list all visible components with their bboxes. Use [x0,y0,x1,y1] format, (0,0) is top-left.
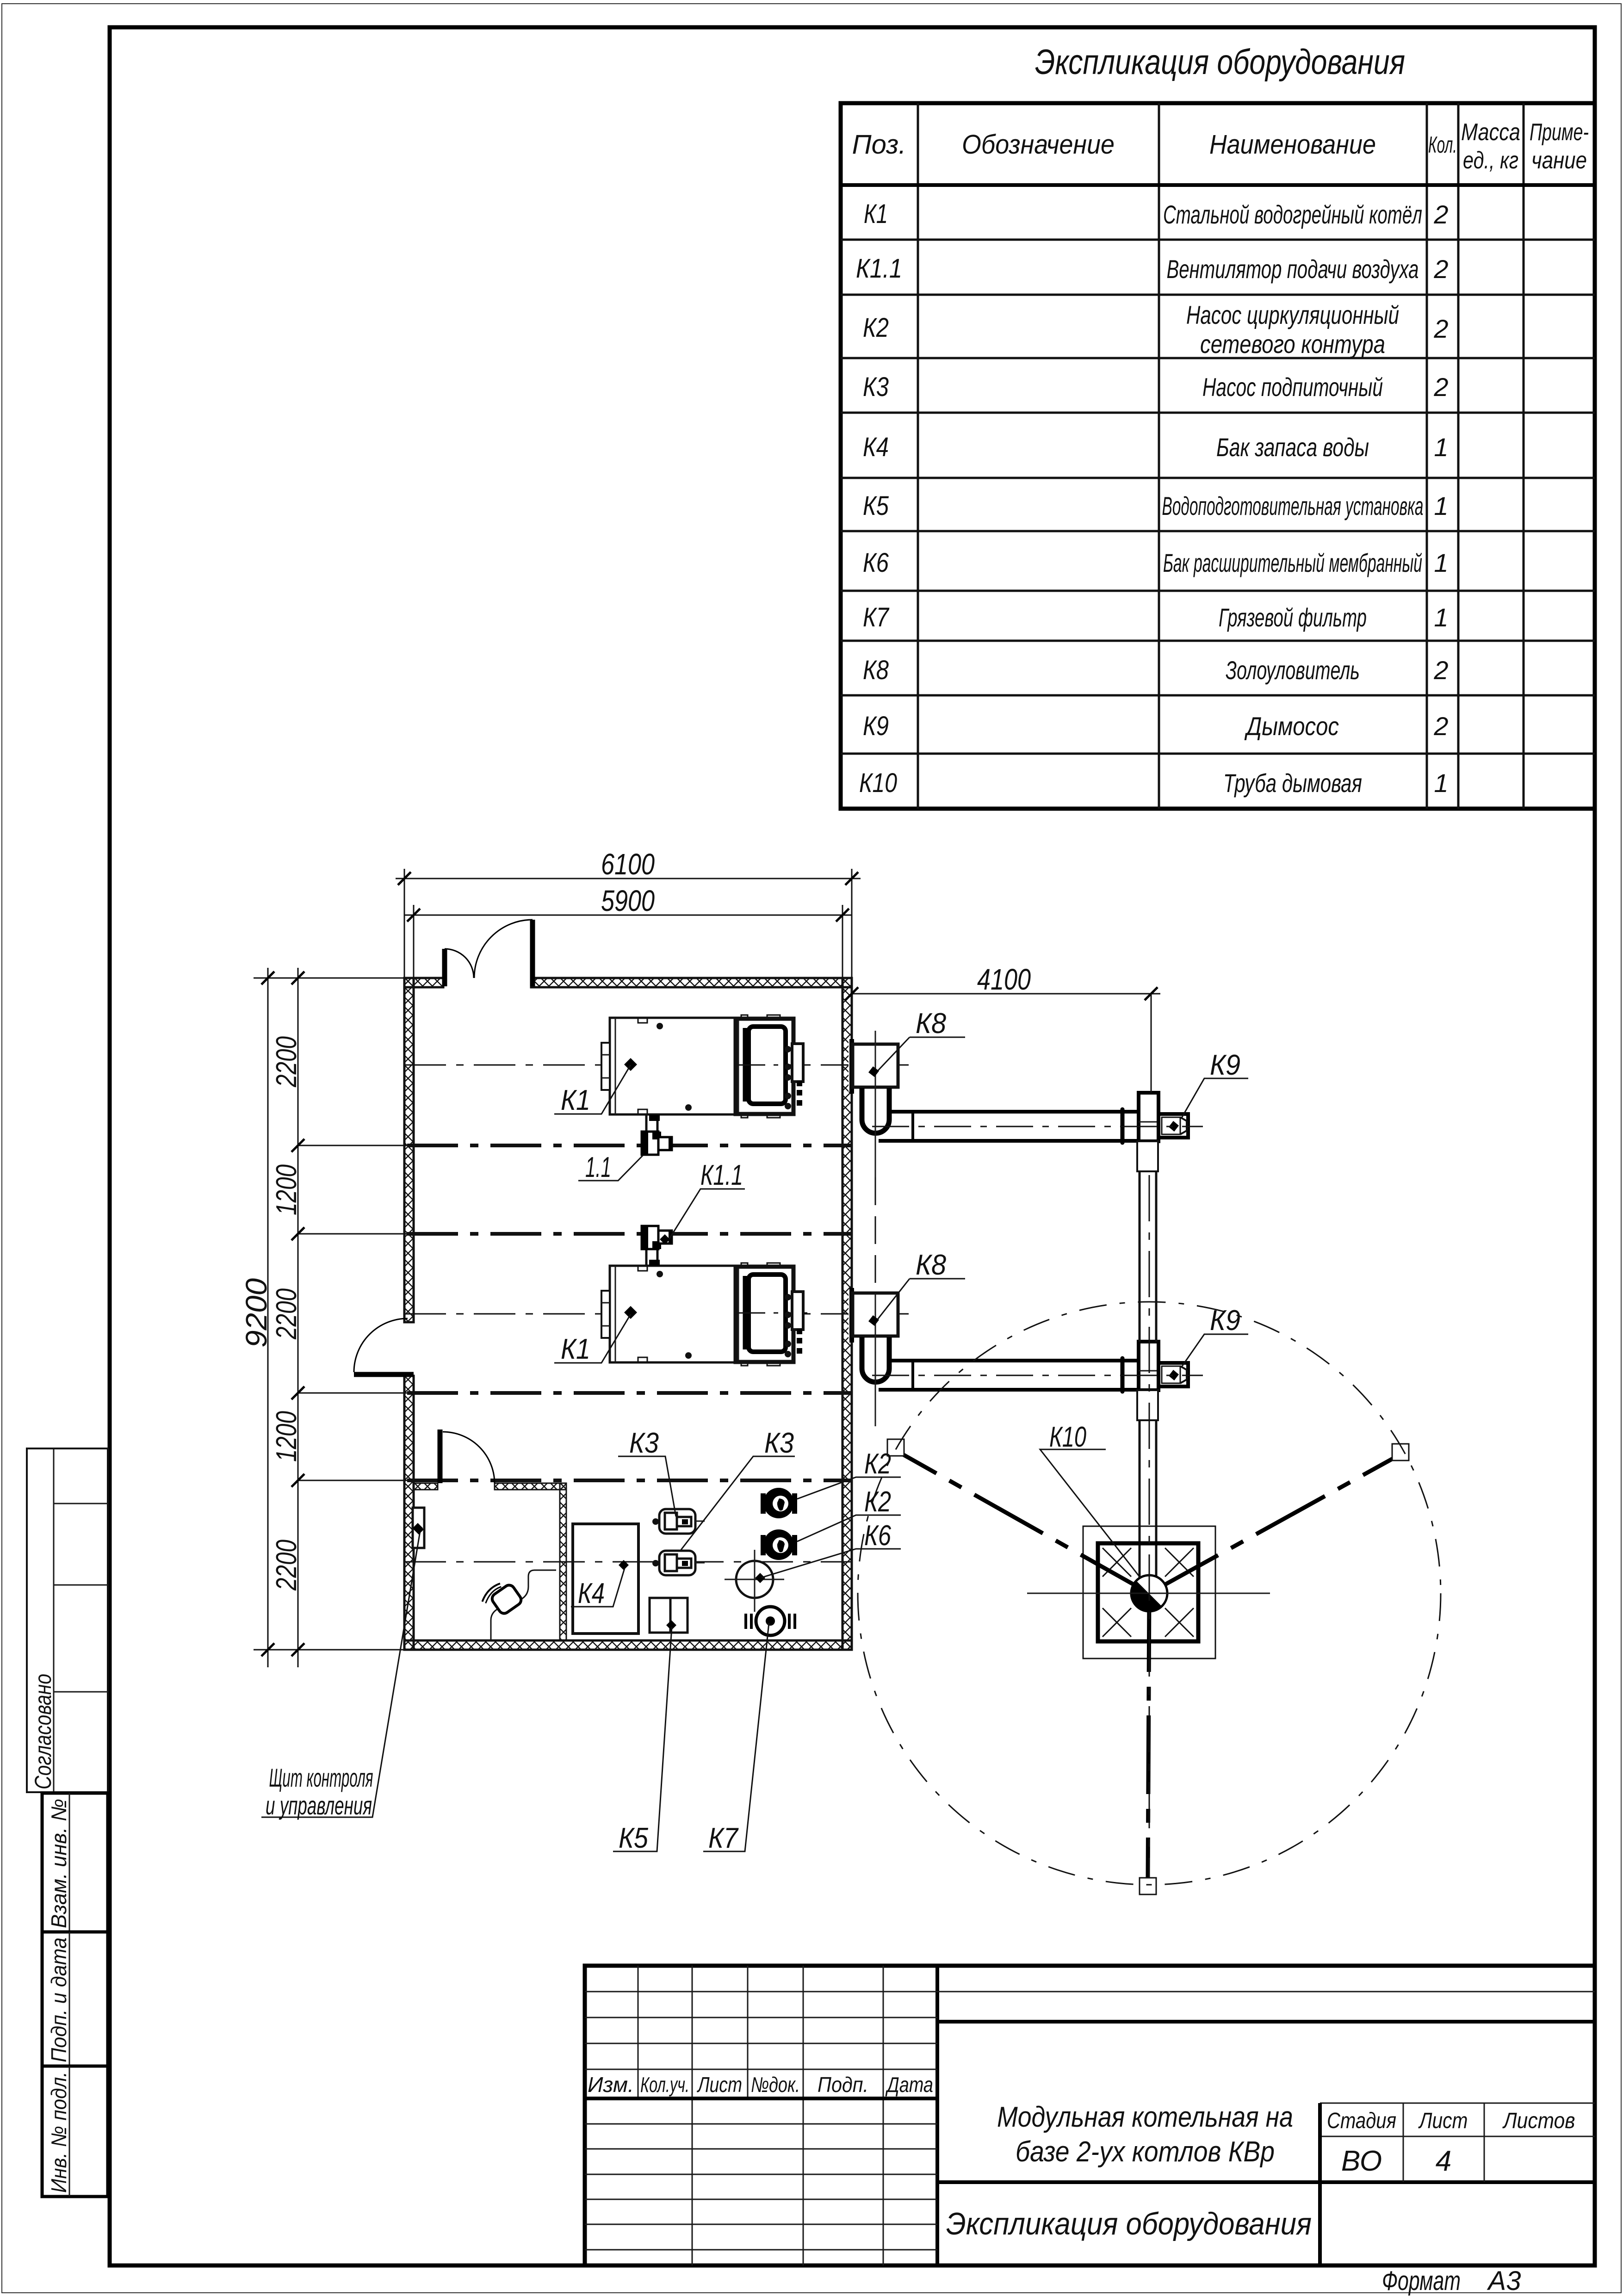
svg-text:2200: 2200 [271,1036,303,1088]
svg-text:2: 2 [1433,372,1448,402]
svg-text:К9: К9 [863,711,889,741]
svg-text:Бак расширительный мембранный: Бак расширительный мембранный [1163,548,1422,577]
svg-text:Масса: Масса [1461,119,1520,146]
svg-text:2: 2 [1433,200,1448,229]
svg-text:К8: К8 [916,1008,946,1040]
svg-text:2: 2 [1433,656,1448,685]
svg-text:сетевого контура: сетевого контура [1200,329,1385,359]
svg-text:Модульная котельная на: Модульная котельная на [997,2101,1293,2133]
svg-text:9200: 9200 [240,1278,273,1348]
svg-text:К8: К8 [916,1249,946,1281]
svg-text:ВО: ВО [1341,2145,1382,2177]
svg-text:К6: К6 [864,1520,891,1552]
svg-text:Стальной водогрейный котёл: Стальной водогрейный котёл [1163,200,1422,229]
svg-text:1: 1 [1434,768,1448,798]
svg-text:К1.1: К1.1 [856,254,902,284]
svg-text:1200: 1200 [271,1411,303,1462]
svg-text:К5: К5 [619,1822,648,1854]
svg-text:базе 2-ух котлов КВр: базе 2-ух котлов КВр [1016,2136,1275,2168]
svg-text:2200: 2200 [271,1288,303,1340]
svg-text:1: 1 [1434,433,1448,462]
svg-text:2200: 2200 [271,1540,303,1591]
svg-text:К10: К10 [1049,1421,1086,1453]
svg-text:К1: К1 [561,1084,590,1116]
svg-text:К10: К10 [859,768,897,798]
svg-text:К6: К6 [863,548,889,578]
svg-text:К2: К2 [864,1448,891,1480]
svg-text:Труба дымовая: Труба дымовая [1223,768,1362,798]
svg-text:5900: 5900 [601,884,655,917]
svg-text:2: 2 [1433,314,1448,343]
svg-text:Формат: Формат [1382,2266,1461,2296]
svg-text:Обозначение: Обозначение [962,130,1115,160]
svg-text:К9: К9 [1210,1049,1240,1081]
svg-text:К4: К4 [863,432,889,462]
svg-text:Дымосос: Дымосос [1244,712,1339,741]
svg-text:А3: А3 [1487,2266,1521,2296]
svg-text:1.1: 1.1 [585,1151,611,1183]
svg-text:К3: К3 [629,1427,659,1459]
svg-text:К8: К8 [863,655,889,685]
svg-text:1200: 1200 [271,1164,303,1215]
svg-text:К3: К3 [764,1427,794,1459]
svg-text:К7: К7 [863,602,890,632]
svg-text:4100: 4100 [977,963,1031,996]
svg-text:Насос подпиточный: Насос подпиточный [1202,372,1383,402]
svg-text:Листов: Листов [1502,2109,1575,2133]
svg-text:Экспликация оборудования: Экспликация оборудования [1035,43,1405,82]
svg-text:К1: К1 [864,199,888,229]
svg-text:2: 2 [1433,254,1448,284]
svg-text:и управления: и управления [266,1791,372,1820]
svg-text:Инв. № подл.: Инв. № подл. [47,2072,71,2193]
svg-text:Лист: Лист [1418,2109,1468,2133]
svg-text:К5: К5 [863,491,889,521]
svg-text:Изм.: Изм. [588,2073,634,2097]
svg-text:Экспликация оборудования: Экспликация оборудования [946,2206,1312,2241]
svg-text:1: 1 [1434,548,1448,577]
svg-text:К9: К9 [1210,1305,1240,1337]
svg-text:Щит контроля: Щит контроля [269,1763,373,1792]
svg-text:чание: чание [1531,147,1587,174]
svg-text:Золоуловитель: Золоуловитель [1226,656,1360,685]
svg-text:ед., кг: ед., кг [1463,147,1518,174]
svg-text:Бак запаса воды: Бак запаса воды [1216,433,1369,462]
svg-text:Стадия: Стадия [1327,2109,1396,2133]
svg-text:Водоподготовительная установка: Водоподготовительная установка [1162,491,1424,520]
svg-text:Приме-: Приме- [1530,119,1589,146]
svg-text:Дата: Дата [885,2073,933,2097]
svg-text:К1.1: К1.1 [700,1159,743,1191]
svg-text:Взам. инв. №: Взам. инв. № [47,1799,71,1928]
svg-text:Вентилятор подачи воздуха: Вентилятор подачи воздуха [1167,254,1419,284]
svg-text:Кол.уч.: Кол.уч. [640,2073,689,2097]
svg-text:К3: К3 [863,372,889,402]
svg-text:Поз.: Поз. [852,130,906,160]
svg-text:К7: К7 [708,1822,739,1854]
svg-text:К2: К2 [863,313,889,343]
svg-text:К1: К1 [561,1333,590,1365]
svg-text:6100: 6100 [601,848,655,881]
svg-text:Лист: Лист [697,2073,742,2097]
svg-text:Наименование: Наименование [1209,130,1376,160]
svg-text:Насос циркуляционный: Насос циркуляционный [1186,300,1399,329]
svg-text:Подп. и дата: Подп. и дата [47,1937,71,2062]
svg-text:№док.: №док. [751,2073,800,2097]
svg-text:К4: К4 [578,1578,605,1609]
svg-text:Подп.: Подп. [818,2073,868,2097]
svg-text:2: 2 [1433,712,1448,741]
svg-text:1: 1 [1434,603,1448,632]
svg-text:Согласовано: Согласовано [30,1674,56,1789]
svg-text:1: 1 [1434,491,1448,520]
svg-text:4: 4 [1436,2145,1451,2177]
svg-text:Грязевой фильтр: Грязевой фильтр [1219,603,1367,632]
svg-text:Кол.: Кол. [1428,132,1457,158]
svg-text:К2: К2 [864,1486,891,1518]
